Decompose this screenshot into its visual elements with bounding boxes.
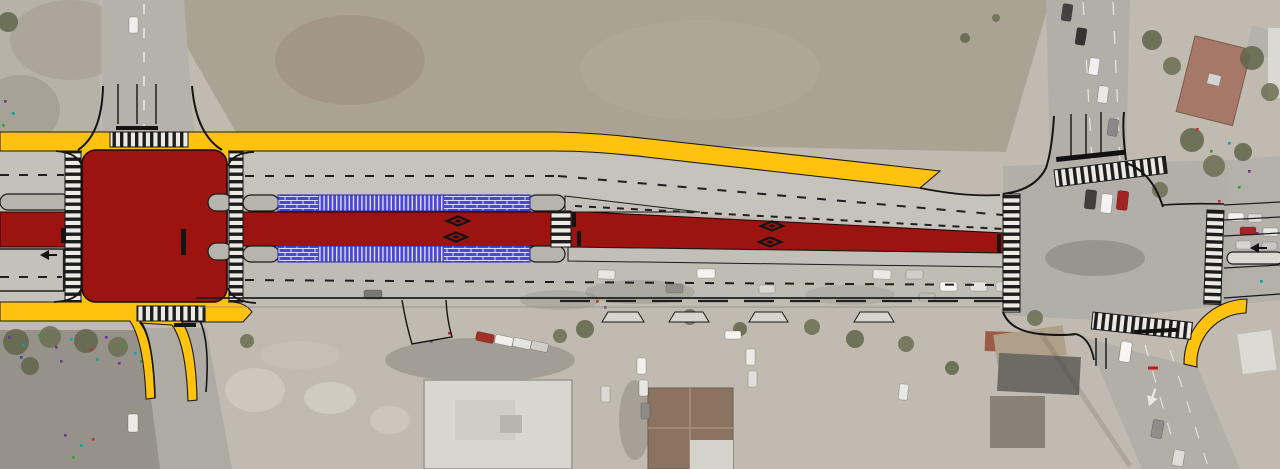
- aerial-road-north-right: [1046, 0, 1130, 170]
- car: [748, 371, 757, 387]
- transit-lane-median: [243, 212, 568, 246]
- tree: [992, 14, 1000, 22]
- car: [1084, 189, 1097, 209]
- building-roof-detail: [690, 440, 733, 469]
- stop-bar: [116, 126, 158, 130]
- zebra-crosswalk: [110, 132, 188, 147]
- car: [970, 282, 987, 291]
- car: [1172, 449, 1186, 467]
- building-brown-house-a: [619, 380, 733, 469]
- car: [666, 284, 683, 293]
- platform-pavers: [444, 246, 530, 262]
- glitch-speckle: [134, 352, 137, 355]
- stop-bar: [174, 323, 196, 327]
- car: [1100, 193, 1113, 213]
- driveway-apron: [602, 312, 644, 322]
- glitch-speckle: [80, 444, 83, 447]
- median-pill: [0, 194, 70, 210]
- tree: [1142, 30, 1162, 50]
- glitch-speckle: [1260, 280, 1263, 283]
- glitch-speckle: [38, 334, 41, 337]
- tree: [1163, 57, 1181, 75]
- tree: [898, 336, 914, 352]
- aerial-road-north-left: [102, 0, 194, 133]
- tree: [74, 329, 98, 353]
- bus-platform-top: [278, 195, 530, 211]
- glitch-speckle: [1218, 200, 1221, 203]
- stop-bar: [997, 234, 1001, 253]
- zebra-crosswalk: [1204, 210, 1224, 305]
- field-patch: [580, 20, 820, 120]
- car: [697, 269, 715, 278]
- building-roof: [990, 396, 1045, 448]
- platform-pavers: [278, 246, 318, 262]
- glitch-speckle: [1228, 142, 1231, 145]
- glitch-speckle: [60, 360, 63, 363]
- car: [1107, 118, 1119, 136]
- shadow-blob: [1045, 240, 1145, 276]
- glitch-speckle: [70, 338, 73, 341]
- building-shed: [1237, 330, 1276, 374]
- glitch-speckle: [20, 356, 23, 359]
- median-pill: [208, 243, 232, 260]
- tree: [960, 33, 970, 43]
- plan-canvas: [0, 0, 1280, 469]
- transit-lane-west-leg: [0, 212, 66, 247]
- median-pill: [243, 246, 279, 262]
- glitch-speckle: [1248, 170, 1251, 173]
- zebra-crosswalk: [137, 306, 205, 321]
- car: [637, 358, 646, 374]
- car: [1097, 85, 1109, 103]
- car: [919, 293, 935, 301]
- tree: [1203, 155, 1225, 177]
- zebra-crosswalk: [551, 211, 571, 247]
- median-pill: [208, 194, 232, 211]
- tree: [945, 361, 959, 375]
- stop-bar: [572, 212, 576, 227]
- platform-pavers: [278, 195, 318, 211]
- median-pill: [528, 246, 565, 262]
- glitch-speckle: [1238, 186, 1241, 189]
- glitch-speckle: [64, 434, 67, 437]
- corridor-plan-svg: [0, 0, 1280, 469]
- lot-debris: [225, 368, 285, 412]
- car: [1116, 190, 1129, 210]
- tree: [576, 320, 594, 338]
- car: [1061, 3, 1073, 21]
- refuge-island: [1227, 252, 1280, 264]
- car: [128, 414, 138, 432]
- tree: [108, 337, 128, 357]
- glitch-speckle: [105, 336, 108, 339]
- glitch-speckle: [4, 100, 7, 103]
- glitch-speckle: [92, 438, 95, 441]
- glitch-speckle: [55, 346, 58, 349]
- platform-pavers: [318, 195, 444, 211]
- car: [725, 331, 741, 339]
- tree: [240, 334, 254, 348]
- tree: [1180, 128, 1204, 152]
- tree: [3, 329, 29, 355]
- car: [129, 17, 138, 33]
- stop-bar: [61, 228, 66, 243]
- glitch-speckle: [72, 456, 75, 459]
- platform-pavers: [444, 195, 530, 211]
- field-patch: [275, 15, 425, 105]
- tree: [1261, 83, 1279, 101]
- tree: [1234, 143, 1252, 161]
- glitch-speckle: [90, 348, 93, 351]
- tree: [846, 330, 864, 348]
- glitch-speckle: [96, 358, 99, 361]
- glitch-speckle: [1210, 150, 1213, 153]
- glitch-speckle: [118, 362, 121, 365]
- tree: [553, 329, 567, 343]
- car: [898, 384, 908, 401]
- tree: [1240, 46, 1264, 70]
- median-pill: [243, 195, 279, 211]
- glitch-speckle: [8, 336, 11, 339]
- glitch-speckle: [1196, 128, 1199, 131]
- glitch-speckle: [2, 124, 5, 127]
- car: [1263, 228, 1278, 236]
- tree: [1027, 310, 1043, 326]
- stop-bar: [577, 231, 581, 246]
- car: [641, 403, 650, 419]
- lot-debris: [370, 406, 410, 434]
- rooftop-unit: [500, 415, 522, 433]
- car: [1236, 241, 1251, 249]
- glitch-speckle: [12, 112, 15, 115]
- driveway-apron: [669, 312, 709, 322]
- car: [1088, 57, 1100, 75]
- car: [940, 282, 957, 291]
- tree: [1152, 182, 1168, 198]
- car: [906, 270, 923, 279]
- aerial-intersection-right: [1003, 160, 1228, 320]
- tree: [804, 319, 820, 335]
- car: [598, 270, 615, 280]
- bus-platform-bottom: [278, 246, 530, 262]
- car: [1075, 27, 1087, 45]
- car: [601, 386, 610, 402]
- glitch-speckle: [122, 344, 125, 347]
- car: [746, 349, 755, 365]
- tree: [39, 326, 61, 348]
- car: [759, 285, 775, 293]
- platform-pavers: [318, 246, 444, 262]
- glitch-speckle: [22, 344, 25, 347]
- car: [1119, 341, 1133, 362]
- car: [873, 270, 891, 280]
- transit-intersection-box: [82, 150, 227, 302]
- lot-debris: [260, 341, 340, 369]
- lot-debris: [304, 382, 356, 414]
- zebra-crosswalk: [65, 152, 81, 302]
- driveway-apron: [854, 312, 894, 322]
- tree: [21, 357, 39, 375]
- car: [639, 380, 648, 396]
- median-pill: [528, 195, 565, 211]
- driveway-apron: [749, 312, 788, 322]
- stop-bar: [181, 229, 186, 255]
- zebra-crosswalk: [1003, 194, 1020, 312]
- zebra-crosswalk: [229, 152, 243, 302]
- glitch-speckle: [596, 300, 599, 303]
